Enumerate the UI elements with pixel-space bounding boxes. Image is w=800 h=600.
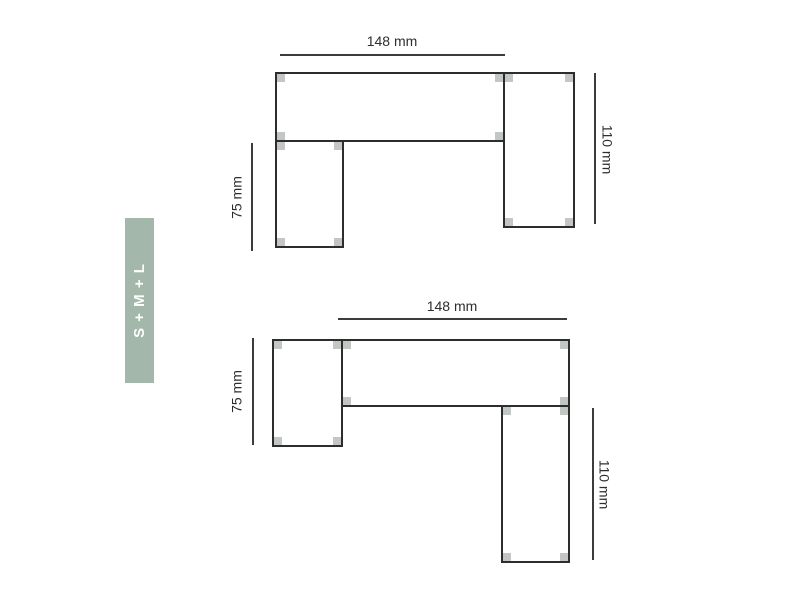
corner-marker [560,553,568,561]
corner-marker [343,397,351,405]
corner-marker [277,132,285,140]
depth-dimension-label: 75 mm [229,138,246,258]
size-combination-label: S + M + L [131,263,148,338]
corner-marker [495,74,503,82]
width-dimension-label: 148 mm [332,33,452,50]
width-dimension-label: 148 mm [392,298,512,315]
corner-marker [334,238,342,246]
corner-marker [560,341,568,349]
sofa-module-left-chaise [275,140,344,248]
corner-marker [333,437,341,445]
corner-marker [274,437,282,445]
size-combination-badge: S + M + L [125,218,154,383]
sofa-module-right-chaise [501,405,570,563]
corner-marker [277,74,285,82]
sofa-module-right-chaise [503,72,575,228]
height-dimension-label: 110 mm [599,90,616,210]
depth-dimension-line [252,338,254,445]
sofa-module-main [341,339,570,407]
depth-dimension-line [251,143,253,251]
corner-marker [560,397,568,405]
corner-marker [274,341,282,349]
height-dimension-line [594,73,596,224]
height-dimension-label: 110 mm [596,425,613,545]
height-dimension-line [592,408,594,560]
depth-dimension-label: 75 mm [229,332,246,452]
sofa-module-left-chaise [272,339,343,447]
corner-marker [565,74,573,82]
corner-marker [334,142,342,150]
corner-marker [503,553,511,561]
corner-marker [503,407,511,415]
corner-marker [560,407,568,415]
corner-marker [343,341,351,349]
corner-marker [505,74,513,82]
corner-marker [565,218,573,226]
corner-marker [277,142,285,150]
corner-marker [333,341,341,349]
width-dimension-line [338,318,567,320]
corner-marker [505,218,513,226]
corner-marker [495,132,503,140]
width-dimension-line [280,54,505,56]
sofa-module-main [275,72,505,142]
corner-marker [277,238,285,246]
blueprint-canvas: S + M + L 148 mm 110 mm 75 mm [0,0,800,600]
